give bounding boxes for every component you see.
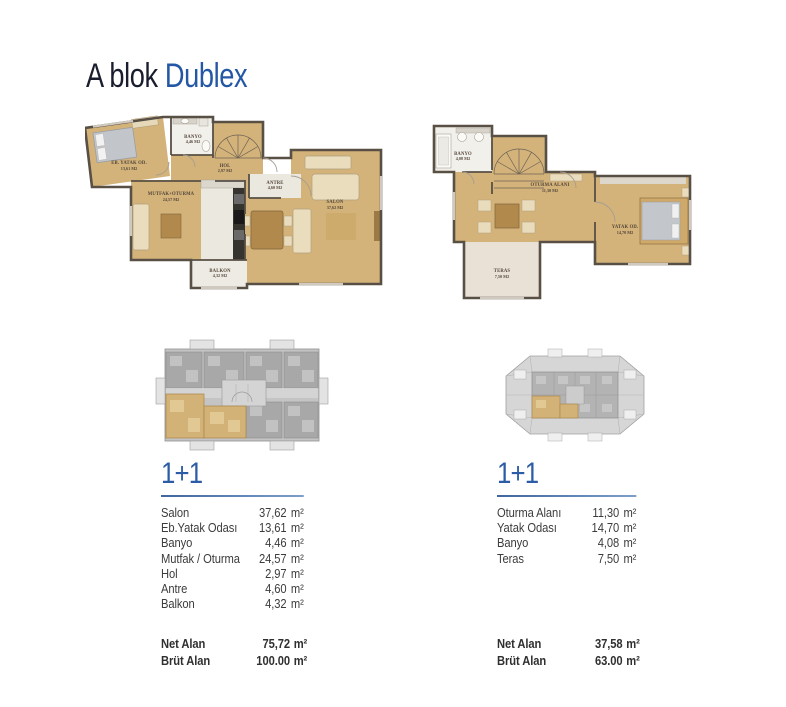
- room-name: Teras: [497, 551, 580, 566]
- gross-area-row: Brüt Alan63.00m²: [497, 653, 640, 670]
- gross-area-row: Brüt Alan100.00m²: [161, 653, 307, 670]
- floor-plan-left: EB. YATAK OD. 13,61 M2 BANYO 4,46 M2 HOL…: [85, 114, 385, 296]
- spec-row: Teras7,50m²: [497, 551, 636, 566]
- room-area: 4,08: [580, 535, 620, 550]
- area-unit: m²: [287, 566, 304, 581]
- svg-text:14,70 M2: 14,70 M2: [617, 230, 634, 235]
- net-area-row: Net Alan75,72m²: [161, 636, 307, 653]
- net-area-label: Net Alan: [497, 636, 583, 653]
- brochure-page: A blokDublex: [0, 0, 786, 707]
- room-name: Hol: [161, 566, 247, 581]
- spec-row: Banyo4,08m²: [497, 535, 636, 550]
- svg-text:4,32 M2: 4,32 M2: [213, 273, 227, 278]
- room-name: Oturma Alanı: [497, 505, 580, 520]
- room-area: 14,70: [580, 520, 620, 535]
- room-area: 13,61: [247, 520, 287, 535]
- spec-table-left: 1+1 Salon37,62m² Eb.Yatak Odası13,61m² B…: [161, 459, 304, 611]
- room-area: 4,32: [247, 596, 287, 611]
- spec-row: Yatak Odası14,70m²: [497, 520, 636, 535]
- highlighted-unit-room: [536, 400, 546, 408]
- gross-area-label: Brüt Alan: [161, 653, 250, 670]
- spec-row: Balkon4,32m²: [161, 596, 304, 611]
- area-unit: m²: [287, 520, 304, 535]
- unit-type-left: 1+1: [161, 459, 304, 489]
- room-area: 4,60: [247, 581, 287, 596]
- site-key-plan-left: [152, 332, 332, 458]
- area-summary-right: Net Alan37,58m² Brüt Alan63.00m²: [497, 636, 640, 669]
- area-unit: m²: [287, 505, 304, 520]
- stair-core: [566, 386, 584, 404]
- gross-area-label: Brüt Alan: [497, 653, 583, 670]
- room-name: Balkon: [161, 596, 247, 611]
- page-title: A blokDublex: [86, 59, 247, 93]
- room-name: Salon: [161, 505, 247, 520]
- room-area: 11,30: [580, 505, 620, 520]
- svg-text:24,57 M2: 24,57 M2: [163, 197, 180, 202]
- net-area-label: Net Alan: [161, 636, 250, 653]
- area-unit: m²: [619, 520, 636, 535]
- title-block-name: A blok: [86, 57, 158, 95]
- spec-row: Antre4,60m²: [161, 581, 304, 596]
- spec-row: Salon37,62m²: [161, 505, 304, 520]
- svg-text:4,46 M2: 4,46 M2: [186, 139, 200, 144]
- net-area-value: 37,58: [583, 636, 623, 653]
- area-unit: m²: [287, 581, 304, 596]
- net-area-value: 75,72: [250, 636, 290, 653]
- divider-rule: [497, 495, 636, 497]
- room-area: 2,97: [247, 566, 287, 581]
- gross-area-value: 100.00: [250, 653, 290, 670]
- svg-text:4,60 M2: 4,60 M2: [268, 185, 282, 190]
- unit-type-right: 1+1: [497, 459, 636, 489]
- spec-row: Eb.Yatak Odası13,61m²: [161, 520, 304, 535]
- area-unit: m²: [619, 505, 636, 520]
- area-unit: m²: [290, 636, 307, 653]
- room-name: Antre: [161, 581, 247, 596]
- room-area: 37,62: [247, 505, 287, 520]
- room-area: 7,50: [580, 551, 620, 566]
- area-summary-left: Net Alan75,72m² Brüt Alan100.00m²: [161, 636, 307, 669]
- room-area: 4,46: [247, 535, 287, 550]
- spec-row: Hol2,97m²: [161, 566, 304, 581]
- spec-row: Banyo4,46m²: [161, 535, 304, 550]
- spec-row: Oturma Alanı11,30m²: [497, 505, 636, 520]
- area-unit: m²: [287, 596, 304, 611]
- room-name: Yatak Odası: [497, 520, 580, 535]
- floor-plan-right: BANYO 4,08 M2 OTURMA ALANI 11,30 M2 YATA…: [432, 112, 694, 302]
- divider-rule: [161, 495, 304, 497]
- area-unit: m²: [619, 535, 636, 550]
- room-name: Eb.Yatak Odası: [161, 520, 247, 535]
- svg-text:7,50 M2: 7,50 M2: [495, 274, 509, 279]
- svg-text:2,97 M2: 2,97 M2: [218, 168, 232, 173]
- area-unit: m²: [287, 535, 304, 550]
- room-name: Banyo: [497, 535, 580, 550]
- title-highlight: Dublex: [165, 57, 247, 95]
- area-unit: m²: [619, 551, 636, 566]
- svg-text:11,30 M2: 11,30 M2: [542, 188, 558, 193]
- area-unit: m²: [623, 636, 640, 653]
- spec-row: Mutfak / Oturma24,57m²: [161, 551, 304, 566]
- room-name: Banyo: [161, 535, 247, 550]
- svg-text:37,62 M2: 37,62 M2: [327, 205, 344, 210]
- site-key-plan-right: [496, 346, 654, 446]
- area-unit: m²: [287, 551, 304, 566]
- stair-core: [222, 380, 266, 406]
- area-unit: m²: [290, 653, 307, 670]
- room-area: 24,57: [247, 551, 287, 566]
- gross-area-value: 63.00: [583, 653, 623, 670]
- spec-table-right: 1+1 Oturma Alanı11,30m² Yatak Odası14,70…: [497, 459, 636, 566]
- svg-text:13,61 M2: 13,61 M2: [121, 166, 138, 171]
- area-unit: m²: [623, 653, 640, 670]
- svg-text:4,08 M2: 4,08 M2: [456, 156, 470, 161]
- net-area-row: Net Alan37,58m²: [497, 636, 640, 653]
- room-name: Mutfak / Oturma: [161, 551, 247, 566]
